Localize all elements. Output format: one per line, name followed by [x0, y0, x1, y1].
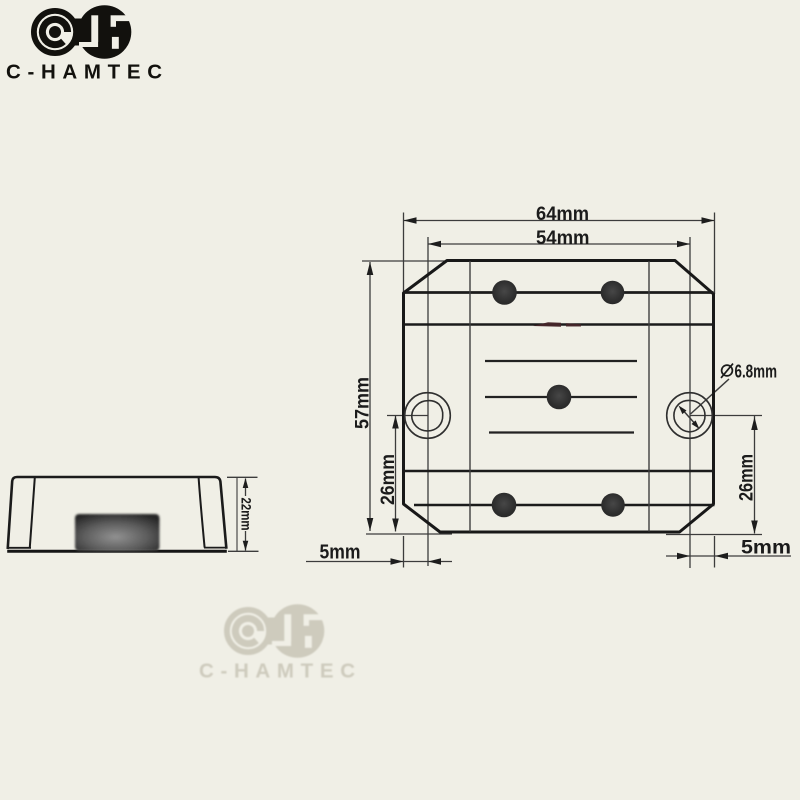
svg-text:54mm: 54mm: [536, 228, 590, 249]
svg-text:26mm: 26mm: [378, 454, 399, 505]
svg-text:6.8mm: 6.8mm: [735, 361, 778, 382]
svg-text:64mm: 64mm: [536, 204, 589, 225]
svg-text:22mm: 22mm: [239, 498, 254, 531]
svg-text:5mm: 5mm: [741, 538, 791, 559]
svg-text:5mm: 5mm: [320, 542, 361, 564]
svg-text:26mm: 26mm: [737, 454, 758, 501]
svg-text:57mm: 57mm: [353, 377, 374, 429]
